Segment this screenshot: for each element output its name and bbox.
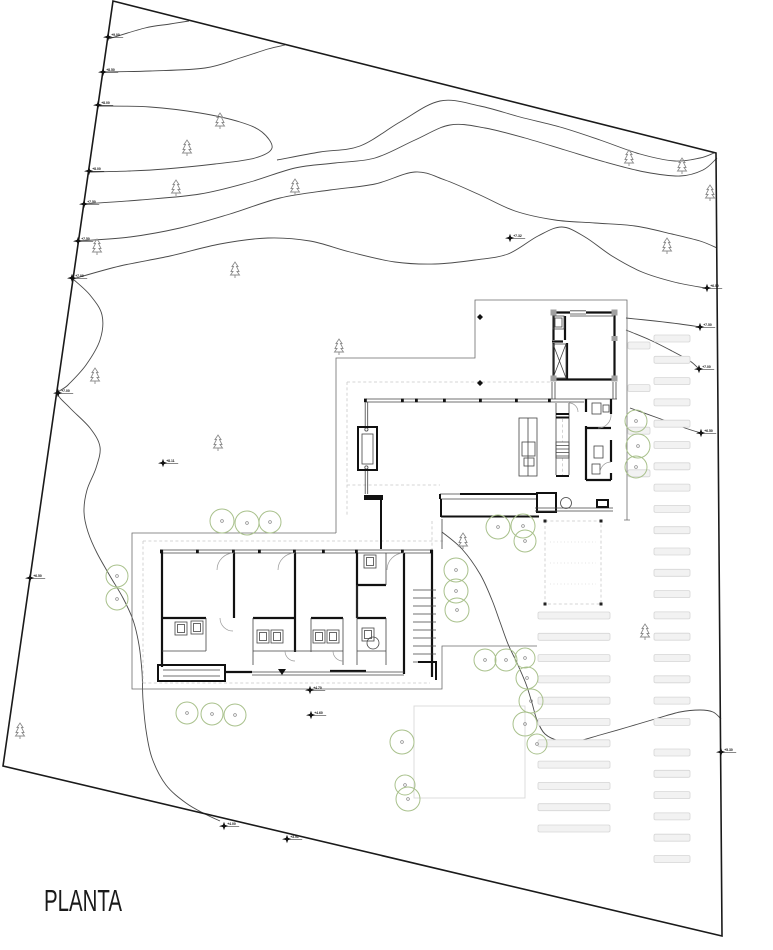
svg-text:+9.00: +9.00 bbox=[111, 33, 120, 37]
svg-text:+6.00: +6.00 bbox=[710, 284, 719, 288]
svg-text:+7.50: +7.50 bbox=[703, 323, 712, 327]
svg-text:+7.00: +7.00 bbox=[61, 389, 70, 393]
svg-text:+7.50: +7.50 bbox=[81, 237, 90, 241]
svg-text:+5.30: +5.30 bbox=[724, 748, 733, 752]
svg-text:+4.60: +4.60 bbox=[314, 711, 323, 715]
svg-text:+3.91: +3.91 bbox=[290, 835, 299, 839]
svg-text:+4.00: +4.00 bbox=[227, 822, 236, 826]
svg-text:+8.50: +8.50 bbox=[106, 68, 115, 72]
svg-text:+7.00: +7.00 bbox=[702, 365, 711, 369]
svg-text:+7.50: +7.50 bbox=[87, 200, 96, 204]
svg-text:+4.70: +4.70 bbox=[313, 686, 322, 690]
svg-text:PLANTA: PLANTA bbox=[44, 883, 122, 918]
svg-text:+8.00: +8.00 bbox=[101, 101, 110, 105]
svg-text:+8.00: +8.00 bbox=[92, 167, 101, 171]
svg-text:+6.50: +6.50 bbox=[33, 574, 42, 578]
svg-text:+6.50: +6.50 bbox=[704, 429, 713, 433]
svg-text:+7.32: +7.32 bbox=[513, 234, 522, 238]
svg-text:+8.11: +8.11 bbox=[166, 459, 175, 463]
svg-text:+7.00: +7.00 bbox=[75, 274, 84, 278]
